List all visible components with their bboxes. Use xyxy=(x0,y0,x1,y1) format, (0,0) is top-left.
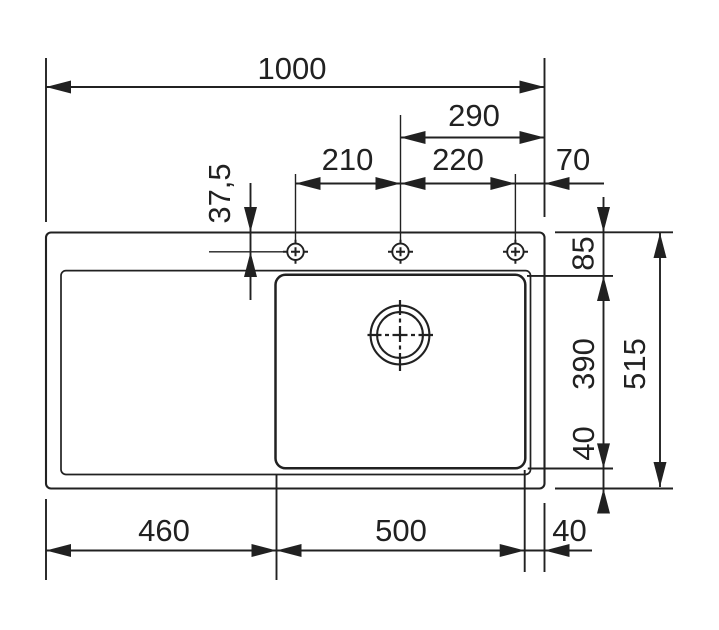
svg-text:40: 40 xyxy=(552,513,586,548)
svg-text:515: 515 xyxy=(617,338,652,390)
svg-text:40: 40 xyxy=(566,426,601,460)
svg-text:85: 85 xyxy=(566,236,601,270)
svg-text:70: 70 xyxy=(556,142,590,177)
svg-text:1000: 1000 xyxy=(258,51,327,86)
svg-text:210: 210 xyxy=(322,142,374,177)
svg-text:500: 500 xyxy=(375,513,427,548)
svg-text:390: 390 xyxy=(566,338,601,390)
svg-text:220: 220 xyxy=(432,142,484,177)
svg-text:290: 290 xyxy=(448,98,500,133)
svg-text:460: 460 xyxy=(138,513,190,548)
svg-text:37,5: 37,5 xyxy=(202,163,237,223)
